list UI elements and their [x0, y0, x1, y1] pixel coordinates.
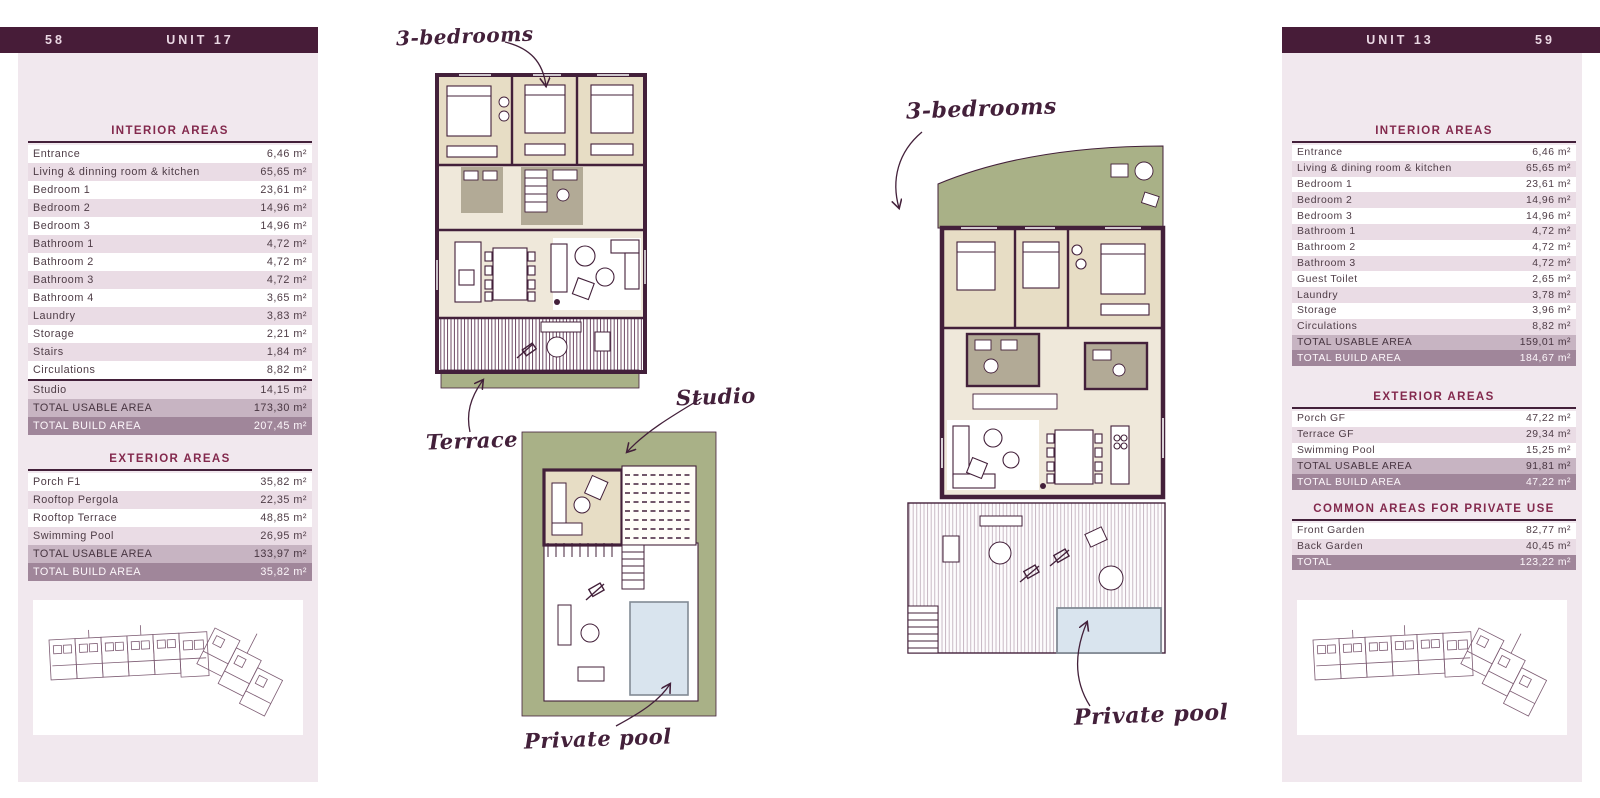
- row-label: Porch GF: [1297, 413, 1345, 424]
- table-row: Bathroom 14,72 m²: [28, 235, 312, 253]
- table-row: TOTAL BUILD AREA35,82 m²: [28, 563, 312, 581]
- row-label: Circulations: [33, 364, 95, 376]
- row-value: 40,45 m²: [1526, 541, 1571, 552]
- section-title: EXTERIOR AREAS: [28, 453, 312, 471]
- row-label: Bathroom 2: [33, 256, 94, 268]
- row-label: Back Garden: [1297, 541, 1363, 552]
- table-row: Circulations8,82 m²: [28, 361, 312, 379]
- row-label: Bathroom 3: [1297, 258, 1356, 269]
- row-label: Bedroom 3: [1297, 211, 1352, 222]
- page-number: 58: [0, 27, 110, 53]
- row-label: Rooftop Terrace: [33, 512, 117, 524]
- table-row: Bathroom 14,72 m²: [1292, 224, 1576, 240]
- table-row: Bedroom 214,96 m²: [28, 199, 312, 217]
- exterior-areas-section: EXTERIOR AREAS Porch GF47,22 m²Terrace G…: [1292, 391, 1576, 490]
- row-value: 23,61 m²: [1526, 179, 1571, 190]
- row-label: Storage: [1297, 305, 1337, 316]
- annotation-private-pool-unit13: Private pool: [1074, 699, 1229, 730]
- row-value: 2,65 m²: [1532, 274, 1571, 285]
- row-value: 6,46 m²: [1532, 147, 1571, 158]
- table-row: TOTAL123,22 m²: [1292, 555, 1576, 571]
- row-value: 3,78 m²: [1532, 290, 1571, 301]
- annotation-terrace: Terrace: [426, 426, 519, 454]
- row-label: Terrace GF: [1297, 429, 1354, 440]
- site-plan-drawing: [33, 600, 303, 735]
- row-value: 8,82 m²: [267, 364, 307, 376]
- row-label: TOTAL: [1297, 557, 1332, 568]
- annotation-3-bedrooms-unit13: 3-bedrooms: [906, 93, 1058, 124]
- section-title: EXTERIOR AREAS: [1292, 391, 1576, 409]
- row-value: 4,72 m²: [1532, 258, 1571, 269]
- row-value: 3,96 m²: [1532, 305, 1571, 316]
- row-value: 15,25 m²: [1526, 445, 1571, 456]
- row-label: TOTAL BUILD AREA: [1297, 477, 1401, 488]
- table-row: Rooftop Pergola22,35 m²: [28, 491, 312, 509]
- row-label: TOTAL USABLE AREA: [33, 548, 152, 560]
- row-value: 91,81 m²: [1526, 461, 1571, 472]
- table-row: Laundry3,83 m²: [28, 307, 312, 325]
- row-value: 8,82 m²: [1532, 321, 1571, 332]
- interior-areas-section: INTERIOR AREAS Entrance6,46 m²Living & d…: [1292, 125, 1576, 366]
- table-row: Bedroom 123,61 m²: [1292, 177, 1576, 193]
- table-row: Stairs1,84 m²: [28, 343, 312, 361]
- row-value: 26,95 m²: [260, 530, 307, 542]
- table-row: TOTAL USABLE AREA159,01 m²: [1292, 335, 1576, 351]
- row-value: 48,85 m²: [260, 512, 307, 524]
- table-row: Back Garden40,45 m²: [1292, 539, 1576, 555]
- row-value: 4,72 m²: [1532, 242, 1571, 253]
- row-label: Swimming Pool: [33, 530, 114, 542]
- row-label: Stairs: [33, 346, 64, 358]
- row-label: Living & dinning room & kitchen: [33, 166, 200, 178]
- site-plan-thumbnail: [1297, 600, 1567, 735]
- table-row: TOTAL BUILD AREA184,67 m²: [1292, 350, 1576, 366]
- table-row: Circulations8,82 m²: [1292, 319, 1576, 335]
- row-label: Bathroom 1: [33, 238, 94, 250]
- table-row: Living & dining room & kitchen65,65 m²: [1292, 161, 1576, 177]
- section-title: INTERIOR AREAS: [28, 125, 312, 143]
- table-row: TOTAL USABLE AREA133,97 m²: [28, 545, 312, 563]
- table-row: Bedroom 314,96 m²: [1292, 208, 1576, 224]
- row-label: TOTAL BUILD AREA: [1297, 353, 1401, 364]
- row-label: Bedroom 2: [33, 202, 90, 214]
- annotation-studio: Studio: [676, 383, 757, 411]
- row-label: Bedroom 2: [1297, 195, 1352, 206]
- floor-plan-unit13: [905, 138, 1170, 658]
- table-row: TOTAL USABLE AREA91,81 m²: [1292, 458, 1576, 474]
- row-value: 65,65 m²: [260, 166, 307, 178]
- page-header-bar-left: 58 UNIT 17: [0, 27, 318, 53]
- interior-areas-section: INTERIOR AREAS Entrance6,46 m²Living & d…: [28, 125, 312, 435]
- table-row: Bathroom 24,72 m²: [1292, 240, 1576, 256]
- section-title: INTERIOR AREAS: [1292, 125, 1576, 143]
- row-label: Front Garden: [1297, 525, 1365, 536]
- row-value: 14,96 m²: [260, 202, 307, 214]
- table-row: Porch F135,82 m²: [28, 473, 312, 491]
- row-value: 35,82 m²: [260, 566, 307, 578]
- table-row: Laundry3,78 m²: [1292, 287, 1576, 303]
- site-plan-thumbnail: [33, 600, 303, 735]
- unit-title: UNIT 13: [1310, 27, 1490, 53]
- row-label: Storage: [33, 328, 74, 340]
- exterior-areas-section: EXTERIOR AREAS Porch F135,82 m²Rooftop P…: [28, 453, 312, 581]
- row-label: TOTAL BUILD AREA: [33, 566, 141, 578]
- row-value: 207,45 m²: [254, 420, 307, 432]
- row-label: Laundry: [1297, 290, 1338, 301]
- row-label: Bathroom 2: [1297, 242, 1356, 253]
- row-value: 1,84 m²: [267, 346, 307, 358]
- table-row: Living & dinning room & kitchen65,65 m²: [28, 163, 312, 181]
- row-label: Entrance: [1297, 147, 1343, 158]
- table-row: Swimming Pool15,25 m²: [1292, 443, 1576, 459]
- row-value: 14,96 m²: [1526, 211, 1571, 222]
- row-value: 35,82 m²: [260, 476, 307, 488]
- row-value: 123,22 m²: [1520, 557, 1571, 568]
- unit-title: UNIT 17: [110, 27, 290, 53]
- table-row: Rooftop Terrace48,85 m²: [28, 509, 312, 527]
- row-label: Circulations: [1297, 321, 1357, 332]
- table-row: Terrace GF29,34 m²: [1292, 427, 1576, 443]
- row-label: Bedroom 1: [33, 184, 90, 196]
- brochure-spread: { "pages": { "left": { "page_number": "5…: [0, 0, 1600, 798]
- row-value: 3,83 m²: [267, 310, 307, 322]
- row-label: Laundry: [33, 310, 76, 322]
- common-areas-section: COMMON AREAS FOR PRIVATE USE Front Garde…: [1292, 503, 1576, 570]
- areas-table: Front Garden82,77 m²Back Garden40,45 m²T…: [1292, 523, 1576, 570]
- row-value: 23,61 m²: [260, 184, 307, 196]
- site-plan-drawing: [1297, 600, 1567, 735]
- row-label: Studio: [33, 384, 67, 396]
- row-value: 47,22 m²: [1526, 477, 1571, 488]
- row-value: 47,22 m²: [1526, 413, 1571, 424]
- row-value: 22,35 m²: [260, 494, 307, 506]
- table-row: Swimming Pool26,95 m²: [28, 527, 312, 545]
- area-panel-unit17: INTERIOR AREAS Entrance6,46 m²Living & d…: [18, 53, 318, 782]
- floor-plan-unit17-main: [433, 70, 649, 392]
- row-label: TOTAL USABLE AREA: [1297, 337, 1412, 348]
- page-header-bar-right: UNIT 13 59: [1282, 27, 1600, 53]
- areas-table: Entrance6,46 m²Living & dinning room & k…: [28, 145, 312, 435]
- table-row: Storage3,96 m²: [1292, 303, 1576, 319]
- row-value: 4,72 m²: [267, 256, 307, 268]
- row-value: 14,96 m²: [260, 220, 307, 232]
- row-value: 2,21 m²: [267, 328, 307, 340]
- table-row: Bedroom 214,96 m²: [1292, 192, 1576, 208]
- table-row: Front Garden82,77 m²: [1292, 523, 1576, 539]
- row-value: 14,15 m²: [260, 384, 307, 396]
- section-title: COMMON AREAS FOR PRIVATE USE: [1292, 503, 1576, 521]
- table-row: Entrance6,46 m²: [28, 145, 312, 163]
- row-label: TOTAL BUILD AREA: [33, 420, 141, 432]
- annotation-private-pool-unit17: Private pool: [524, 723, 672, 753]
- table-row: Bathroom 43,65 m²: [28, 289, 312, 307]
- row-value: 184,67 m²: [1520, 353, 1571, 364]
- row-value: 173,30 m²: [254, 402, 307, 414]
- table-row: Guest Toilet2,65 m²: [1292, 271, 1576, 287]
- row-label: TOTAL USABLE AREA: [33, 402, 152, 414]
- row-value: 82,77 m²: [1526, 525, 1571, 536]
- annotation-3-bedrooms-unit17: 3-bedrooms: [396, 22, 534, 51]
- row-label: Guest Toilet: [1297, 274, 1358, 285]
- row-label: Bathroom 3: [33, 274, 94, 286]
- row-value: 133,97 m²: [254, 548, 307, 560]
- area-panel-unit13: INTERIOR AREAS Entrance6,46 m²Living & d…: [1282, 53, 1582, 782]
- page-number: 59: [1490, 27, 1600, 53]
- table-row: Porch GF47,22 m²: [1292, 411, 1576, 427]
- row-label: Bedroom 3: [33, 220, 90, 232]
- row-label: TOTAL USABLE AREA: [1297, 461, 1412, 472]
- table-row: TOTAL BUILD AREA47,22 m²: [1292, 474, 1576, 490]
- row-label: Entrance: [33, 148, 80, 160]
- table-row: TOTAL BUILD AREA207,45 m²: [28, 417, 312, 435]
- row-label: Bathroom 1: [1297, 226, 1356, 237]
- table-row: Bathroom 34,72 m²: [1292, 256, 1576, 272]
- row-value: 65,65 m²: [1526, 163, 1571, 174]
- row-value: 4,72 m²: [267, 274, 307, 286]
- row-label: Bedroom 1: [1297, 179, 1352, 190]
- table-row: Bathroom 24,72 m²: [28, 253, 312, 271]
- floor-plan-unit17-roof: [520, 430, 720, 720]
- row-label: Swimming Pool: [1297, 445, 1375, 456]
- areas-table: Porch GF47,22 m²Terrace GF29,34 m²Swimmi…: [1292, 411, 1576, 490]
- table-row: Storage2,21 m²: [28, 325, 312, 343]
- row-label: Rooftop Pergola: [33, 494, 119, 506]
- row-value: 4,72 m²: [267, 238, 307, 250]
- row-value: 4,72 m²: [1532, 226, 1571, 237]
- areas-table: Porch F135,82 m²Rooftop Pergola22,35 m²R…: [28, 473, 312, 581]
- row-label: Bathroom 4: [33, 292, 94, 304]
- row-value: 29,34 m²: [1526, 429, 1571, 440]
- table-row: Entrance6,46 m²: [1292, 145, 1576, 161]
- table-row: Bathroom 34,72 m²: [28, 271, 312, 289]
- row-value: 14,96 m²: [1526, 195, 1571, 206]
- row-label: Living & dining room & kitchen: [1297, 163, 1452, 174]
- table-row: Bedroom 314,96 m²: [28, 217, 312, 235]
- table-row: TOTAL USABLE AREA173,30 m²: [28, 399, 312, 417]
- row-label: Porch F1: [33, 476, 81, 488]
- areas-table: Entrance6,46 m²Living & dining room & ki…: [1292, 145, 1576, 366]
- row-value: 6,46 m²: [267, 148, 307, 160]
- row-value: 3,65 m²: [267, 292, 307, 304]
- row-value: 159,01 m²: [1520, 337, 1571, 348]
- table-row: Studio14,15 m²: [28, 379, 312, 399]
- table-row: Bedroom 123,61 m²: [28, 181, 312, 199]
